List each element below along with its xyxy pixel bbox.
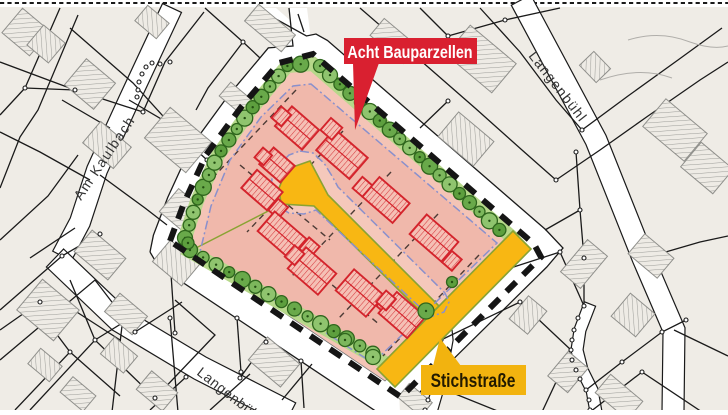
svg-text:Acht Bauparzellen: Acht Bauparzellen (347, 44, 472, 63)
svg-text:Stichstraße: Stichstraße (431, 370, 516, 392)
